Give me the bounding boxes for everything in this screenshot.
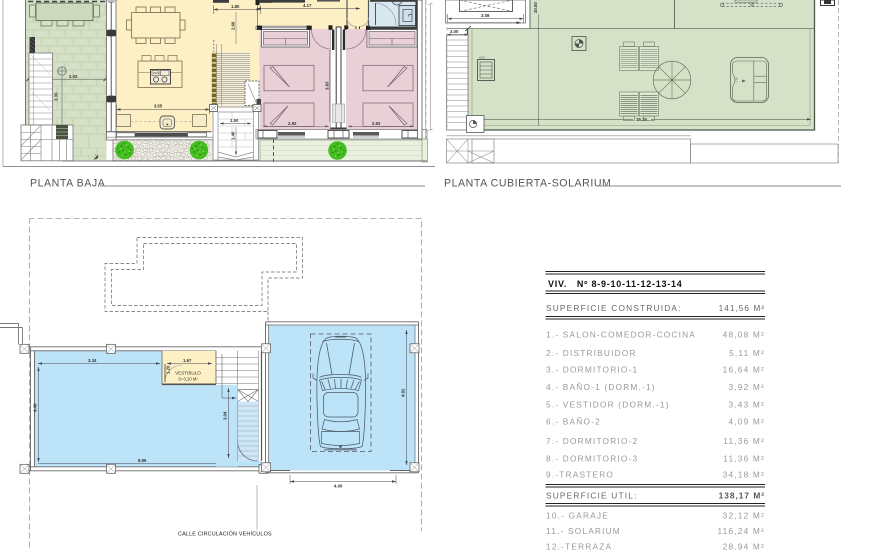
svg-text:8.96: 8.96: [138, 458, 147, 463]
svg-text:32,12 M²: 32,12 M²: [723, 511, 765, 521]
svg-text:9.-TRASTERO: 9.-TRASTERO: [546, 470, 614, 480]
svg-text:141,56 M²: 141,56 M²: [719, 303, 765, 313]
svg-text:5,11 M²: 5,11 M²: [729, 348, 765, 358]
svg-text:5.- VESTIDOR (DORM.-1): 5.- VESTIDOR (DORM.-1): [546, 400, 670, 410]
svg-text:4.00: 4.00: [334, 484, 343, 489]
svg-text:3.- DORMITORIO-1: 3.- DORMITORIO-1: [546, 365, 638, 375]
svg-text:138,17 M²: 138,17 M²: [719, 491, 765, 501]
svg-text:4.17: 4.17: [303, 3, 312, 8]
svg-text:12.-TERRAZA: 12.-TERRAZA: [546, 542, 612, 550]
svg-text:1.60: 1.60: [735, 77, 739, 83]
svg-text:S=3,20 M²: S=3,20 M²: [178, 377, 198, 382]
svg-text:CALLE CIRCULACIÓN VEHÍCULOS: CALLE CIRCULACIÓN VEHÍCULOS: [178, 531, 272, 538]
svg-text:3.35: 3.35: [54, 92, 59, 101]
svg-text:3.34: 3.34: [88, 358, 97, 363]
svg-text:2.02: 2.02: [69, 74, 78, 79]
svg-text:11,36 M²: 11,36 M²: [723, 454, 765, 464]
svg-text:1.- SALON-COMEDOR-COCINA: 1.- SALON-COMEDOR-COCINA: [546, 330, 696, 340]
svg-text:8.- DORMITORIO-3: 8.- DORMITORIO-3: [546, 454, 638, 464]
svg-text:10.- GARAJE: 10.- GARAJE: [546, 511, 609, 521]
svg-text:PLANTA CUBIERTA-SOLARIUM: PLANTA CUBIERTA-SOLARIUM: [444, 178, 611, 190]
svg-text:16,64 M²: 16,64 M²: [723, 365, 765, 375]
svg-text:1.80: 1.80: [231, 4, 240, 9]
svg-text:1.67: 1.67: [183, 358, 192, 363]
svg-text:4.49: 4.49: [33, 403, 38, 412]
svg-text:4.92: 4.92: [401, 388, 406, 397]
svg-text:2.92: 2.92: [288, 121, 297, 126]
svg-text:11,36 M²: 11,36 M²: [723, 436, 765, 446]
svg-text:15.29: 15.29: [636, 117, 647, 122]
svg-text:6.- BAÑO-2: 6.- BAÑO-2: [546, 417, 601, 427]
svg-text:7.- DORMITORIO-2: 7.- DORMITORIO-2: [546, 436, 638, 446]
svg-text:PLANTA BAJA: PLANTA BAJA: [30, 178, 106, 190]
svg-text:VESTIBULO: VESTIBULO: [175, 371, 201, 376]
svg-text:3.83: 3.83: [325, 81, 330, 90]
svg-text:3.08: 3.08: [481, 13, 490, 18]
svg-text:VIV. Nº 8-9-10-11-12-13-14: VIV. Nº 8-9-10-11-12-13-14: [548, 279, 683, 289]
svg-text:4,09 M²: 4,09 M²: [728, 417, 765, 427]
svg-text:1.40: 1.40: [231, 131, 236, 140]
svg-text:48,08 M²: 48,08 M²: [723, 330, 765, 340]
svg-text:11.- SOLARIUM: 11.- SOLARIUM: [546, 526, 621, 536]
svg-text:3.00: 3.00: [450, 29, 459, 34]
svg-text:1.20: 1.20: [166, 365, 171, 374]
svg-text:3.04: 3.04: [223, 411, 228, 420]
svg-text:4.- BAÑO-1 (DORM.-1): 4.- BAÑO-1 (DORM.-1): [546, 382, 656, 392]
svg-text:2.68: 2.68: [231, 21, 236, 30]
svg-text:2.- DISTRIBUIDOR: 2.- DISTRIBUIDOR: [546, 348, 637, 358]
svg-text:34,18 M²: 34,18 M²: [723, 470, 765, 480]
svg-text:3.55: 3.55: [154, 104, 163, 109]
svg-text:ACS: ACS: [479, 56, 485, 60]
svg-text:20.00: 20.00: [533, 2, 538, 13]
svg-text:SUPERFICIE CONSTRUIDA:: SUPERFICIE CONSTRUIDA:: [546, 303, 682, 313]
svg-text:3,92 M²: 3,92 M²: [728, 382, 765, 392]
svg-text:SUPERFICIE UTIL:: SUPERFICIE UTIL:: [546, 491, 638, 501]
svg-text:28,94 M²: 28,94 M²: [723, 542, 765, 550]
svg-text:2.92: 2.92: [372, 121, 381, 126]
svg-text:116,24 M²: 116,24 M²: [717, 526, 765, 536]
svg-text:IOO: IOO: [153, 71, 159, 75]
svg-text:3,43 M²: 3,43 M²: [728, 400, 765, 410]
svg-text:1.50: 1.50: [230, 118, 239, 123]
